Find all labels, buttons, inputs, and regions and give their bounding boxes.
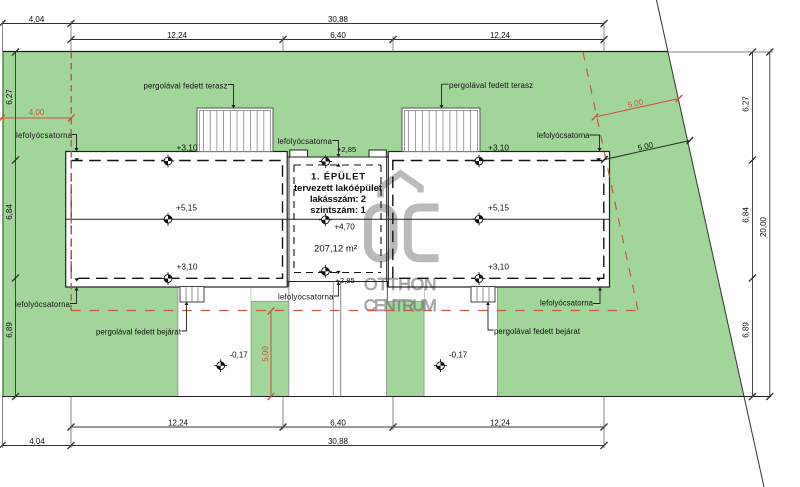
svg-text:6,84: 6,84	[5, 204, 14, 220]
svg-text:6,27: 6,27	[5, 89, 14, 105]
svg-text:lefolyócsatorna: lefolyócsatorna	[537, 131, 590, 140]
svg-text:+2,85: +2,85	[336, 276, 355, 285]
svg-text:-0,17: -0,17	[449, 351, 468, 360]
svg-text:CENTRUM: CENTRUM	[364, 296, 437, 315]
svg-text:6,84: 6,84	[742, 207, 751, 223]
svg-text:+3,10: +3,10	[177, 262, 198, 272]
svg-text:12,24: 12,24	[490, 31, 511, 40]
svg-text:lakásszám: 2: lakásszám: 2	[310, 194, 366, 205]
svg-text:+5,15: +5,15	[488, 203, 509, 213]
svg-text:12,24: 12,24	[490, 419, 511, 428]
svg-text:pergolával fedett terasz: pergolával fedett terasz	[449, 81, 533, 90]
svg-text:6,40: 6,40	[330, 419, 346, 428]
svg-text:6,89: 6,89	[5, 322, 14, 338]
svg-text:-0,17: -0,17	[230, 351, 249, 360]
svg-text:5,00: 5,00	[261, 346, 270, 362]
svg-text:+3,10: +3,10	[488, 262, 509, 272]
svg-text:+3,10: +3,10	[488, 143, 509, 153]
svg-text:4,04: 4,04	[29, 437, 45, 446]
svg-text:+3,10: +3,10	[177, 143, 198, 153]
svg-text:pergolával fedett terasz: pergolával fedett terasz	[144, 81, 228, 90]
svg-text:+5,15: +5,15	[176, 203, 197, 213]
svg-text:207,12 m²: 207,12 m²	[314, 244, 357, 255]
svg-text:lefolyócsatorna: lefolyócsatorna	[278, 137, 333, 146]
svg-text:20,00: 20,00	[759, 216, 768, 237]
svg-text:lefolyócsatorna: lefolyócsatorna	[278, 293, 334, 302]
svg-text:pergolával fedett bejárat: pergolával fedett bejárat	[96, 328, 182, 337]
svg-text:6,40: 6,40	[330, 31, 346, 40]
svg-text:+4,70: +4,70	[335, 223, 356, 232]
svg-text:30,88: 30,88	[328, 15, 349, 24]
svg-text:lefolyócsatorna: lefolyócsatorna	[540, 299, 594, 308]
svg-text:12,24: 12,24	[167, 31, 188, 40]
svg-text:4,00: 4,00	[29, 108, 45, 117]
svg-text:4,04: 4,04	[29, 15, 45, 24]
svg-text:pergolával fedett bejárat: pergolával fedett bejárat	[494, 327, 581, 336]
svg-text:+2,85: +2,85	[337, 145, 356, 154]
svg-text:6,27: 6,27	[742, 96, 751, 112]
svg-text:6,89: 6,89	[742, 322, 751, 338]
svg-text:lefolyócsatorna: lefolyócsatorna	[16, 131, 73, 140]
svg-text:OTTHON: OTTHON	[364, 274, 437, 294]
svg-text:1. ÉPÜLET: 1. ÉPÜLET	[311, 172, 365, 183]
svg-text:lefolyócsatorna: lefolyócsatorna	[15, 300, 71, 309]
svg-text:tervezett lakóépület: tervezett lakóépület	[294, 183, 383, 194]
svg-text:30,88: 30,88	[328, 437, 349, 446]
svg-text:szintszám: 1: szintszám: 1	[310, 205, 366, 216]
svg-text:12,24: 12,24	[168, 419, 189, 428]
